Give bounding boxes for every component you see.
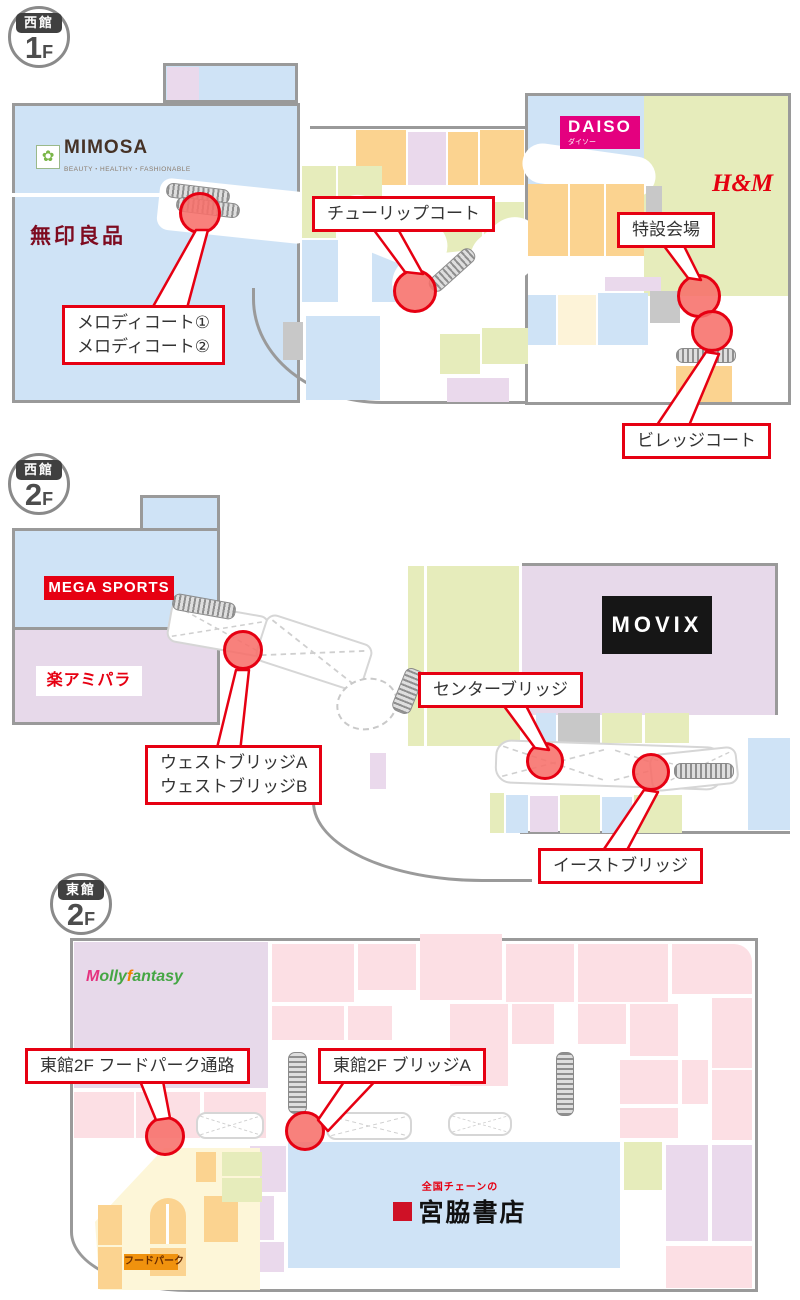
- callout-text: ウェストブリッジA: [160, 751, 307, 775]
- callout-special-venue[interactable]: 特設会場: [617, 212, 715, 248]
- store-logo-miyawaki: 全国チェーンの 宮脇書店: [365, 1178, 555, 1229]
- store-area: [408, 566, 424, 746]
- store-logo-mimosa: ✿ MIMOSA BEAUTY・HEALTHY・FASHIONABLE: [36, 138, 191, 176]
- marker-east-bridge[interactable]: [632, 753, 670, 791]
- store-area: [482, 328, 528, 364]
- molly-part: olly: [99, 968, 127, 985]
- marker-bridge-a[interactable]: [285, 1111, 325, 1151]
- marker-west-bridge[interactable]: [223, 630, 263, 670]
- store-area: [528, 184, 568, 256]
- floor-label: 2F: [11, 480, 67, 516]
- store-area: [602, 797, 632, 833]
- store-area: [222, 1152, 262, 1176]
- floor-badge-east-2f: 東館 2F: [50, 873, 112, 935]
- store-area: [306, 316, 380, 400]
- store-area: [536, 713, 556, 743]
- floor-badge-west-2f: 西館 2F: [8, 453, 70, 515]
- store-area: [605, 277, 661, 291]
- callout-text: メロディコート②: [77, 335, 210, 359]
- tail-west: [216, 670, 249, 752]
- store-area: [348, 1006, 392, 1040]
- store-logo-mega-sports: MEGA SPORTS: [44, 576, 174, 600]
- store-area: [512, 1004, 554, 1044]
- marker-center-bridge[interactable]: [526, 742, 564, 780]
- miyawaki-square-icon: [393, 1202, 412, 1221]
- store-area: [598, 293, 648, 345]
- store-logo-movix: MOVIX: [602, 596, 712, 654]
- marker-melody-court[interactable]: [179, 192, 221, 234]
- store-area: [272, 1006, 344, 1040]
- store-area: [272, 944, 354, 1002]
- store-logo-daiso: DAISO ダイソー: [560, 116, 640, 149]
- floor-map-page: 西館 1F: [0, 0, 800, 1300]
- store-area: [420, 934, 502, 1000]
- store-logo-amipara: 楽アミパラ: [36, 666, 142, 696]
- callout-center-bridge[interactable]: センターブリッジ: [418, 672, 583, 708]
- escalator-icon: [288, 1052, 307, 1114]
- store-area: [302, 240, 338, 302]
- store-area: [98, 1247, 122, 1289]
- escalator-icon: [556, 1052, 574, 1116]
- store-logo-hm: H&M: [712, 170, 773, 198]
- store-area: [222, 1178, 262, 1202]
- store-area: [283, 322, 303, 360]
- mimosa-flower-icon: ✿: [36, 145, 60, 169]
- miyawaki-name: 宮脇書店: [418, 1193, 526, 1229]
- marker-village-court[interactable]: [691, 310, 733, 352]
- store-area: [370, 753, 386, 789]
- store-area: [748, 738, 790, 830]
- callout-text: メロディコート①: [77, 311, 210, 335]
- store-area: [506, 795, 528, 833]
- foodpark-badge: フードパーク: [124, 1254, 178, 1270]
- store-area: [634, 795, 682, 833]
- store-area: [204, 1196, 238, 1242]
- store-area: [558, 713, 600, 743]
- floor-label: 2F: [53, 900, 109, 936]
- mimosa-name: MIMOSA: [64, 137, 148, 158]
- store-area: [480, 130, 524, 185]
- store-area: [408, 132, 446, 185]
- store-area: [645, 713, 689, 743]
- store-area: [712, 998, 752, 1068]
- store-area: [620, 1108, 678, 1138]
- store-area: [650, 291, 680, 323]
- store-area: [682, 1060, 708, 1104]
- store-area: [358, 944, 416, 990]
- store-area: [166, 1204, 169, 1244]
- mimosa-tagline: BEAUTY・HEALTHY・FASHIONABLE: [64, 166, 191, 173]
- store-area: [98, 1205, 122, 1245]
- marker-tulip-court[interactable]: [393, 269, 437, 313]
- store-area: [624, 1142, 662, 1190]
- bridge-crossing: [196, 1112, 264, 1139]
- store-area: [602, 713, 642, 743]
- store-area: [74, 1092, 134, 1138]
- callout-text: ウェストブリッジB: [160, 775, 307, 799]
- store-logo-muji: 無印良品: [30, 220, 126, 250]
- store-area: [666, 1145, 708, 1241]
- store-area: [620, 1060, 678, 1104]
- store-area: [490, 793, 504, 833]
- store-area: [167, 67, 199, 100]
- store-area: [666, 1246, 752, 1288]
- store-area: [570, 184, 604, 256]
- store-area: [672, 944, 752, 994]
- molly-part: antasy: [132, 968, 183, 985]
- callout-foodpark-passage[interactable]: 東館2F フードパーク通路: [25, 1048, 250, 1084]
- store-area: [712, 1145, 752, 1241]
- store-area: [490, 713, 520, 743]
- marker-foodpark-passage[interactable]: [145, 1116, 185, 1156]
- floor-label: 1F: [11, 33, 67, 69]
- store-area: [530, 796, 558, 832]
- bridge-crossing: [326, 1112, 412, 1140]
- callout-melody-court[interactable]: メロディコート① メロディコート②: [62, 305, 225, 365]
- store-area: [448, 132, 478, 185]
- store-area: [676, 366, 732, 402]
- escalator-icon: [674, 763, 734, 779]
- store-area: [196, 1152, 216, 1182]
- store-area: [712, 1070, 752, 1140]
- callout-east-bridge[interactable]: イーストブリッジ: [538, 848, 703, 884]
- store-area: [560, 795, 600, 833]
- daiso-name: DAISO: [568, 117, 632, 136]
- store-area: [528, 295, 556, 345]
- store-area: [578, 944, 668, 1002]
- bridge-crossing: [448, 1112, 512, 1136]
- store-area: [506, 944, 574, 1002]
- store-area: [558, 295, 596, 345]
- callout-west-bridge[interactable]: ウェストブリッジA ウェストブリッジB: [145, 745, 322, 805]
- store-area: [630, 1004, 678, 1056]
- store-area: [447, 378, 509, 402]
- callout-bridge-a[interactable]: 東館2F ブリッジA: [318, 1048, 486, 1084]
- store-logo-mollyfantasy: Mollyfantasy: [86, 968, 183, 986]
- molly-part: M: [86, 968, 99, 985]
- miyawaki-sub: 全国チェーンの: [365, 1178, 555, 1193]
- callout-tulip-court[interactable]: チューリップコート: [312, 196, 495, 232]
- store-area: [578, 1004, 626, 1044]
- floor-badge-west-1f: 西館 1F: [8, 6, 70, 68]
- map-outline: [310, 126, 525, 129]
- daiso-sub: ダイソー: [568, 137, 632, 147]
- callout-village-court[interactable]: ビレッジコート: [622, 423, 771, 459]
- store-area: [440, 334, 480, 374]
